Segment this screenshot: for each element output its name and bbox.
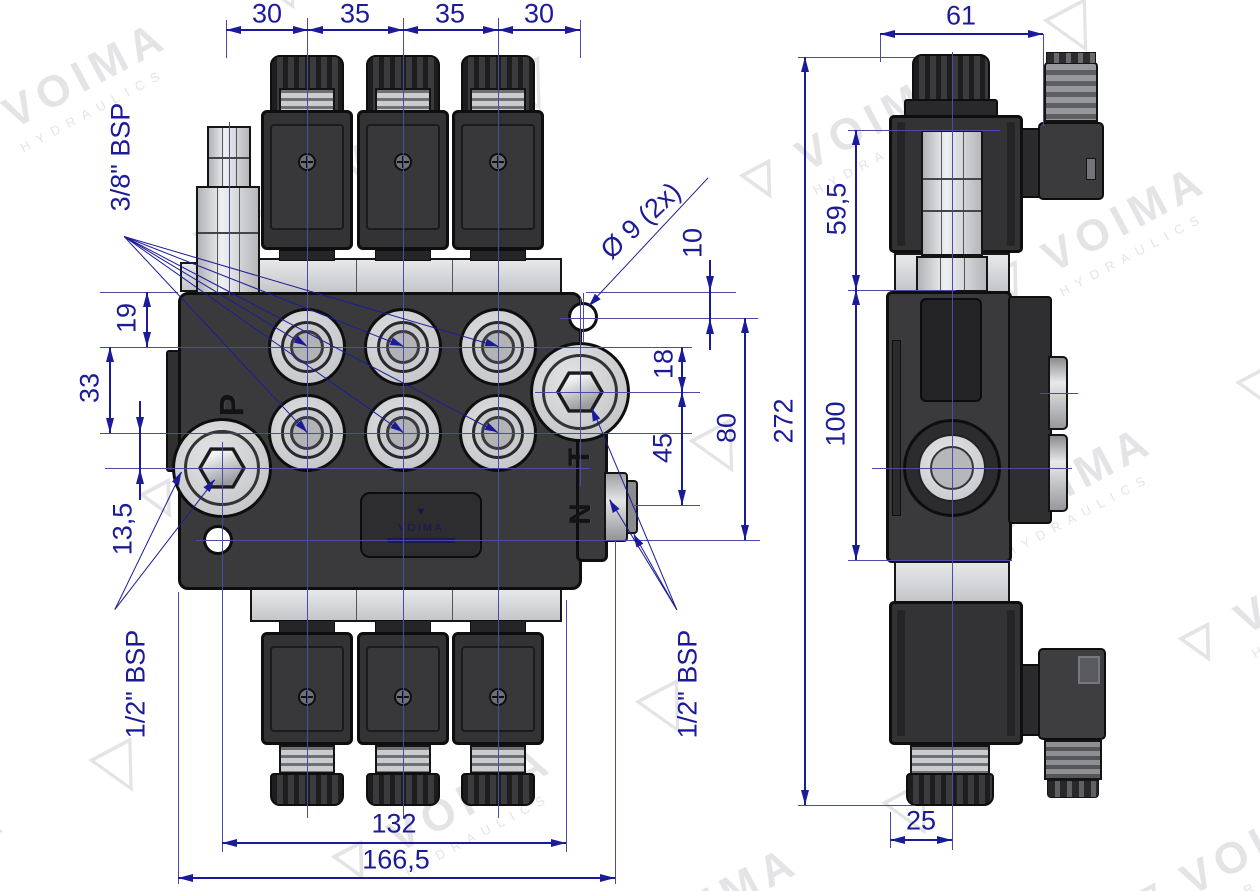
- dimension-label: 25: [906, 806, 936, 837]
- brand-triangle-icon: ▼: [416, 507, 427, 518]
- coil-groove: [897, 122, 905, 246]
- hex-facet: [964, 258, 965, 290]
- bottom-connector-body: [1038, 648, 1106, 740]
- hex-seam: [198, 232, 258, 234]
- centerline: [229, 122, 230, 295]
- dimension-arrow: [143, 332, 151, 347]
- hex-facet: [217, 188, 218, 292]
- port-letter-n: N: [564, 503, 598, 525]
- hex-facet: [941, 132, 942, 254]
- watermark-brand-text: VOIMA: [1173, 778, 1260, 891]
- top-connector-ribs: [1044, 62, 1098, 122]
- dimension-arrow: [226, 26, 241, 34]
- dimension-arrow: [222, 839, 237, 847]
- dimension-label: 61: [946, 1, 976, 32]
- watermark-sub-text: HYDRAULICS: [0, 840, 23, 891]
- dimension-arrow: [852, 130, 860, 145]
- watermark: ▽ VOIMAHYDRAULICS: [0, 796, 23, 891]
- callout-bsp12-right: 1/2" BSP: [673, 630, 704, 739]
- dimension-arrow: [706, 319, 714, 334]
- strip-seam: [452, 260, 453, 292]
- watermark: ▽ VOIMAHYDRAULICS: [1121, 780, 1260, 891]
- dimension-arrow: [678, 490, 686, 505]
- side-port-stub-b: [1048, 434, 1068, 512]
- dimension-arrow: [293, 26, 308, 34]
- dimension-arrow: [308, 26, 323, 34]
- dimension-label: 59,5: [822, 183, 853, 236]
- dimension-line: [804, 57, 806, 805]
- centerline: [498, 18, 499, 818]
- centerline: [798, 57, 915, 58]
- centerline: [182, 347, 692, 348]
- centerline: [634, 505, 700, 506]
- centerline: [196, 540, 760, 541]
- name-plate: ▼ VOIMA: [360, 492, 482, 558]
- technical-drawing-canvas: ▽ VOIMAHYDRAULICS▽▽ VOIMAHYDRAULICS▽▽ VO…: [0, 0, 1260, 891]
- dimension-label: 80: [712, 413, 743, 443]
- dimension-line: [681, 392, 683, 505]
- dimension-line: [709, 260, 711, 350]
- dimension-arrow: [106, 418, 114, 433]
- dimension-arrow: [551, 839, 566, 847]
- centerline: [100, 292, 178, 293]
- dimension-arrow: [890, 836, 905, 844]
- dimension-arrow: [498, 26, 513, 34]
- centerline: [798, 805, 915, 806]
- dimension-label: 132: [371, 809, 416, 840]
- centerline: [403, 18, 404, 818]
- dimension-label: 13,5: [108, 503, 139, 556]
- brand-triangle-icon: ▽: [1227, 344, 1260, 431]
- hex-facet: [963, 132, 964, 254]
- centerline: [952, 52, 953, 850]
- dimension-arrow: [136, 469, 144, 484]
- plate-brand-text: VOIMA: [398, 522, 444, 534]
- dimension-arrow: [136, 417, 144, 432]
- dimension-label: 35: [340, 0, 370, 30]
- centerline: [586, 292, 736, 293]
- centerline: [222, 442, 223, 852]
- coil-groove: [897, 610, 905, 736]
- dimension-label: 100: [821, 401, 852, 446]
- dimension-line: [744, 318, 746, 540]
- dimension-arrow: [106, 347, 114, 362]
- watermark-brand: ▽ VOIMA: [575, 839, 807, 891]
- dimension-arrow: [741, 525, 749, 540]
- brand-triangle-icon: ▽: [735, 147, 794, 209]
- strip-seam: [356, 260, 357, 292]
- coil-groove: [1007, 122, 1015, 246]
- watermark-brand: ▽ VOIMA: [1121, 780, 1260, 891]
- dimension-arrow: [852, 290, 860, 305]
- brand-triangle-icon: ▽: [1120, 871, 1179, 891]
- dimension-line: [880, 33, 1043, 35]
- centerline: [1043, 34, 1044, 126]
- side-top-knurled-cap: [912, 54, 990, 102]
- dimension-label: 19: [112, 303, 143, 333]
- dimension-arrow: [678, 392, 686, 407]
- side-bottom-knurled-cap: [906, 773, 994, 806]
- centerline: [580, 20, 581, 58]
- dimension-arrow: [1028, 30, 1043, 38]
- dimension-arrow: [852, 545, 860, 560]
- centerline: [535, 392, 700, 393]
- centerline: [580, 298, 581, 486]
- dimension-line: [178, 877, 615, 879]
- watermark-brand-text: VOIMA: [1227, 517, 1260, 644]
- dimension-arrow: [388, 26, 403, 34]
- dimension-label: 166,5: [362, 845, 430, 876]
- dimension-arrow: [178, 874, 193, 882]
- watermark-brand: ▽ VOIMA: [1175, 519, 1260, 670]
- dimension-arrow: [403, 26, 418, 34]
- centerline: [848, 130, 1000, 131]
- dimension-arrow: [801, 790, 809, 805]
- centerline: [880, 34, 881, 62]
- strip-seam: [356, 590, 357, 620]
- centerline: [100, 433, 182, 434]
- dimension-line: [855, 130, 857, 290]
- watermark: ▽ VOIMAHYDRAULICS: [575, 839, 816, 891]
- watermark: ▽ VOIMAHYDRAULICS: [0, 13, 184, 181]
- top-connector-body: [1038, 122, 1104, 200]
- dimension-label: 30: [524, 0, 554, 30]
- centerline: [848, 560, 1012, 561]
- centerline: [566, 600, 567, 852]
- dimension-label: 10: [678, 228, 709, 258]
- dimension-arrow: [143, 292, 151, 307]
- centerline: [307, 18, 308, 818]
- top-manifold-strip: [250, 258, 562, 294]
- brand-triangle-icon: ▽: [1174, 610, 1233, 672]
- bottom-connector-ribs: [1044, 740, 1102, 780]
- centerline: [560, 318, 758, 319]
- watermark: ▽: [1229, 348, 1260, 428]
- side-body-panel: [920, 298, 982, 402]
- connector-detail: [1086, 158, 1096, 180]
- brand-triangle-icon: ▽: [0, 104, 1, 166]
- callout-bsp12-left: 1/2" BSP: [121, 630, 152, 739]
- centerline: [1040, 393, 1078, 394]
- side-right-plate: [1008, 296, 1052, 524]
- dimension-line: [139, 401, 141, 500]
- centerline: [178, 592, 179, 884]
- dimension-arrow: [678, 377, 686, 392]
- centerline: [848, 290, 956, 291]
- watermark: ▽ VOIMAHYDRAULICS: [1175, 519, 1260, 687]
- dimension-label: 35: [435, 0, 465, 30]
- n-port-cap: [626, 480, 638, 534]
- side-body-groove: [892, 340, 901, 516]
- centerline: [872, 468, 1072, 469]
- dimension-arrow: [741, 318, 749, 333]
- bottom-manifold-strip: [250, 588, 562, 622]
- dimension-arrow: [937, 836, 952, 844]
- coil-groove: [1007, 610, 1015, 736]
- hex-facet: [239, 188, 240, 292]
- bottom-connector-teeth: [1047, 780, 1099, 798]
- side-bottom-collar: [910, 745, 990, 775]
- centerline: [615, 540, 616, 884]
- callout-bsp38: 3/8" BSP: [106, 103, 137, 212]
- dimension-arrow: [565, 26, 580, 34]
- dimension-arrow: [600, 874, 615, 882]
- port-letter-p: P: [214, 394, 253, 417]
- dimension-arrow: [483, 26, 498, 34]
- watermark-brand-text: VOIMA: [626, 836, 807, 891]
- dimension-line: [855, 290, 857, 560]
- connector-window: [1078, 656, 1100, 684]
- dimension-label: 272: [769, 398, 800, 443]
- dimension-arrow: [801, 57, 809, 72]
- dimension-label: 45: [648, 433, 679, 463]
- strip-seam: [452, 590, 453, 620]
- dimension-arrow: [706, 276, 714, 291]
- dimension-label: 33: [75, 373, 106, 403]
- hex-facet: [940, 258, 941, 290]
- side-bottom-coil: [889, 601, 1023, 745]
- dimension-arrow: [880, 30, 895, 38]
- top-connector-teeth: [1046, 52, 1096, 64]
- dimension-label: 30: [252, 0, 282, 30]
- dimension-line: [222, 842, 566, 844]
- dimension-label: 18: [649, 349, 680, 379]
- centerline: [583, 293, 584, 343]
- dimension-arrow: [852, 275, 860, 290]
- centerline: [105, 468, 590, 469]
- centerline: [182, 433, 692, 434]
